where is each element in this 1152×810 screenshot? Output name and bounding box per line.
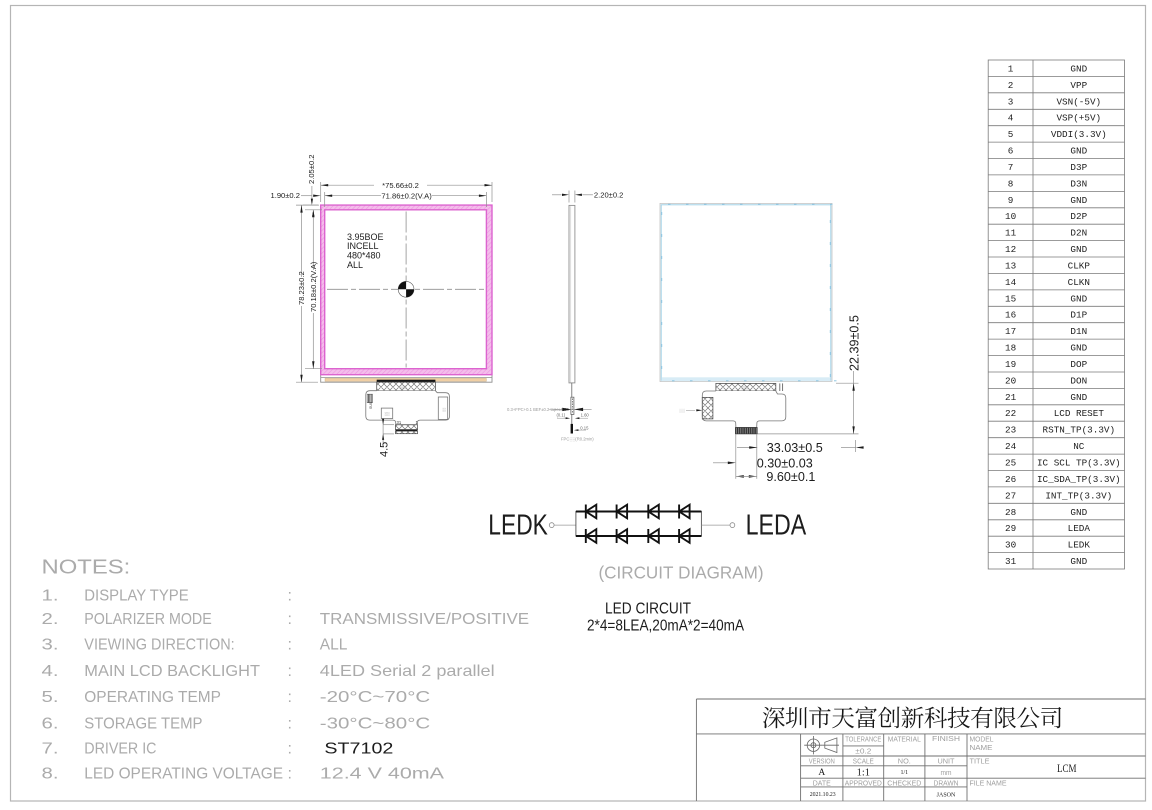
svg-text:GND: GND <box>1070 195 1087 206</box>
svg-text:MATERIAL: MATERIAL <box>888 735 921 744</box>
svg-text:INT_TP(3.3V): INT_TP(3.3V) <box>1045 490 1112 501</box>
svg-text:FILE NAME: FILE NAME <box>970 778 1007 787</box>
svg-text:░░░: ░░░ <box>399 385 407 389</box>
svg-text:22.39±0.5: 22.39±0.5 <box>848 315 862 371</box>
svg-text:LED OPERATING VOLTAGE: LED OPERATING VOLTAGE <box>84 766 283 783</box>
svg-text:6.: 6. <box>42 716 59 733</box>
svg-text:LCM: LCM <box>1057 763 1077 775</box>
svg-text:1: 1 <box>1008 63 1014 74</box>
svg-text:78.23±0.2: 78.23±0.2 <box>297 271 306 305</box>
svg-text:17: 17 <box>1005 326 1016 337</box>
svg-text:GND: GND <box>1070 63 1087 74</box>
svg-text::: : <box>288 611 292 628</box>
svg-text::: : <box>288 637 292 654</box>
svg-text:GND: GND <box>1070 293 1087 304</box>
svg-text:RSTN_TP(3.3V): RSTN_TP(3.3V) <box>1043 425 1116 436</box>
svg-text:D1P: D1P <box>1070 310 1087 321</box>
svg-text:VERSION: VERSION <box>809 756 835 765</box>
svg-text:░░: ░░ <box>384 412 390 416</box>
svg-text:TOLERANCE: TOLERANCE <box>845 735 881 744</box>
svg-text:22: 22 <box>1005 408 1016 419</box>
svg-text:D1N: D1N <box>1070 326 1087 337</box>
svg-text:D3N: D3N <box>1070 178 1087 189</box>
svg-text:LEDA: LEDA <box>1068 523 1091 534</box>
svg-text:30: 30 <box>1005 540 1016 551</box>
svg-text:NOTES:: NOTES: <box>42 557 131 579</box>
svg-text:13: 13 <box>1005 260 1016 271</box>
svg-text:APPROVED: APPROVED <box>845 778 882 787</box>
svg-text:FINISH: FINISH <box>932 734 960 743</box>
svg-text:70.18±0.2(V.A): 70.18±0.2(V.A) <box>309 261 318 312</box>
svg-text:VPP: VPP <box>1070 80 1087 91</box>
svg-text:CHECKED: CHECKED <box>887 778 921 787</box>
svg-text:DRAWN: DRAWN <box>934 778 959 787</box>
svg-text:4: 4 <box>1008 113 1014 124</box>
svg-text:LEDA: LEDA <box>746 510 807 542</box>
svg-text:20: 20 <box>1005 375 1016 386</box>
svg-text:2.05±0.2: 2.05±0.2 <box>307 154 316 184</box>
svg-text:3.: 3. <box>42 637 59 654</box>
svg-text::: : <box>288 716 292 733</box>
svg-text:26: 26 <box>1005 474 1016 485</box>
svg-text::: : <box>288 741 292 758</box>
svg-text:GND: GND <box>1070 556 1087 567</box>
svg-text:4.: 4. <box>42 663 59 680</box>
svg-text:-20°C~70°C: -20°C~70°C <box>320 689 430 706</box>
svg-text:10: 10 <box>1005 211 1016 222</box>
svg-text:ALL: ALL <box>347 260 363 270</box>
svg-text:14: 14 <box>1005 277 1017 288</box>
svg-text:9.60±0.1: 9.60±0.1 <box>766 470 815 484</box>
svg-text:NC: NC <box>1073 441 1085 452</box>
svg-text:LED CIRCUIT: LED CIRCUIT <box>605 601 691 618</box>
svg-text:UNIT: UNIT <box>938 757 955 766</box>
svg-text:D2P: D2P <box>1070 211 1087 222</box>
svg-text:DISPLAY TYPE: DISPLAY TYPE <box>84 588 188 605</box>
svg-text:31: 31 <box>397 420 402 425</box>
svg-text:71.86±0.2(V.A): 71.86±0.2(V.A) <box>381 191 432 200</box>
svg-text:(CIRCUIT DIAGRAM): (CIRCUIT DIAGRAM) <box>599 563 764 583</box>
svg-text:31: 31 <box>1005 556 1017 567</box>
svg-text:6: 6 <box>1008 146 1014 157</box>
svg-text:SCALE: SCALE <box>853 757 874 766</box>
svg-text:9: 9 <box>1008 195 1014 206</box>
svg-text:TITLE: TITLE <box>970 757 990 766</box>
svg-text:16: 16 <box>1005 310 1016 321</box>
svg-text:MAIN LCD BACKLIGHT: MAIN LCD BACKLIGHT <box>84 663 260 680</box>
svg-text:5: 5 <box>1008 129 1014 140</box>
svg-text:D2N: D2N <box>1070 228 1087 239</box>
svg-text:LEDK: LEDK <box>488 510 548 542</box>
svg-text:12.4 V 40mA: 12.4 V 40mA <box>320 766 445 783</box>
svg-text:SUS: SUS <box>369 401 373 409</box>
svg-text:LEDK: LEDK <box>1068 540 1091 551</box>
svg-text:DON: DON <box>1070 375 1087 386</box>
svg-text:12: 12 <box>1005 244 1016 255</box>
svg-text:28: 28 <box>1005 507 1016 518</box>
svg-text:FPC░░(R0.2min): FPC░░(R0.2min) <box>561 437 594 442</box>
svg-text:2021.10.23: 2021.10.23 <box>810 791 836 798</box>
svg-text:░░░: ░░░ <box>741 386 749 390</box>
svg-text:IC_SDA_TP(3.3V): IC_SDA_TP(3.3V) <box>1037 474 1121 485</box>
svg-text:1/1: 1/1 <box>900 770 908 776</box>
svg-text:24: 24 <box>1005 441 1017 452</box>
svg-text:D3P: D3P <box>1070 162 1087 173</box>
svg-text:GND: GND <box>1070 244 1087 255</box>
svg-text:4.5: 4.5 <box>379 442 391 457</box>
svg-text:NO.: NO. <box>898 757 911 766</box>
svg-text:CLKN: CLKN <box>1068 277 1090 288</box>
svg-text:IC SCL TP(3.3V): IC SCL TP(3.3V) <box>1037 458 1121 469</box>
svg-text:JASON: JASON <box>937 792 956 798</box>
svg-text:mm: mm <box>941 768 952 777</box>
svg-text:GND: GND <box>1070 146 1087 157</box>
svg-text:VSP(+5V): VSP(+5V) <box>1056 113 1101 124</box>
svg-text::: : <box>288 588 292 605</box>
svg-text:CLKP: CLKP <box>1068 260 1091 271</box>
svg-text:1.90±0.2: 1.90±0.2 <box>270 191 300 200</box>
svg-text:TRANSMISSIVE/POSITIVE: TRANSMISSIVE/POSITIVE <box>320 611 529 628</box>
svg-text:15: 15 <box>1005 293 1016 304</box>
svg-text:DOP: DOP <box>1070 359 1087 370</box>
svg-text:GND: GND <box>1070 343 1087 354</box>
svg-text:1:1: 1:1 <box>857 767 870 778</box>
svg-text:ST7102: ST7102 <box>324 741 393 758</box>
svg-text:2*4=8LEA,20mA*2=40mA: 2*4=8LEA,20mA*2=40mA <box>587 618 744 635</box>
svg-text:2.20±0.2: 2.20±0.2 <box>594 190 624 199</box>
svg-text:0.15: 0.15 <box>580 426 589 431</box>
svg-text:OPERATING TEMP: OPERATING TEMP <box>84 689 221 706</box>
svg-text:DRIVER IC: DRIVER IC <box>84 741 156 758</box>
svg-text:5.: 5. <box>42 689 59 706</box>
svg-text:GND: GND <box>1070 507 1087 518</box>
svg-text:*75.66±0.2: *75.66±0.2 <box>382 181 419 190</box>
svg-text:27: 27 <box>1005 490 1016 501</box>
svg-text:VDDI(3.3V): VDDI(3.3V) <box>1051 129 1107 140</box>
svg-text:29: 29 <box>1005 523 1016 534</box>
svg-text:GND: GND <box>1070 392 1087 403</box>
svg-text:8.: 8. <box>42 766 59 783</box>
svg-text:POLARIZER MODE: POLARIZER MODE <box>84 611 211 628</box>
svg-text:8: 8 <box>1008 178 1014 189</box>
svg-text:4LED Serial 2 parallel: 4LED Serial 2 parallel <box>320 663 495 680</box>
svg-text:1.: 1. <box>42 588 59 605</box>
svg-text:2.: 2. <box>42 611 59 628</box>
svg-text::: : <box>288 663 292 680</box>
svg-text:VSN(-5V): VSN(-5V) <box>1056 96 1101 107</box>
svg-text:23: 23 <box>1005 425 1016 436</box>
svg-text:-30°C~80°C: -30°C~80°C <box>320 716 430 733</box>
svg-text:11: 11 <box>1005 228 1017 239</box>
svg-text:A: A <box>818 768 825 778</box>
svg-text:DATE: DATE <box>813 778 831 787</box>
svg-text:33.03±0.5: 33.03±0.5 <box>767 441 823 455</box>
svg-text:NAME: NAME <box>970 743 993 752</box>
svg-text:19: 19 <box>1005 359 1016 370</box>
svg-text:LCD RESET: LCD RESET <box>1054 408 1105 419</box>
svg-text:7.: 7. <box>42 741 59 758</box>
svg-text:±0.2: ±0.2 <box>855 747 871 756</box>
svg-text:18: 18 <box>1005 343 1016 354</box>
svg-text:(0.1): (0.1) <box>557 412 566 417</box>
svg-text:STORAGE TEMP: STORAGE TEMP <box>84 716 202 733</box>
svg-text:21: 21 <box>1005 392 1017 403</box>
svg-text:1.60: 1.60 <box>581 412 590 417</box>
svg-text:░░: ░░ <box>679 408 685 413</box>
svg-text:0.30±0.03: 0.30±0.03 <box>757 456 813 470</box>
svg-text:ALL: ALL <box>320 637 348 654</box>
svg-text:25: 25 <box>1005 458 1016 469</box>
svg-text:7: 7 <box>1008 162 1014 173</box>
svg-text:2: 2 <box>1008 80 1014 91</box>
svg-text::: : <box>288 766 292 783</box>
svg-text:3: 3 <box>1008 96 1014 107</box>
svg-text:VIEWING DIRECTION:: VIEWING DIRECTION: <box>84 637 234 654</box>
svg-text::: : <box>288 689 292 706</box>
